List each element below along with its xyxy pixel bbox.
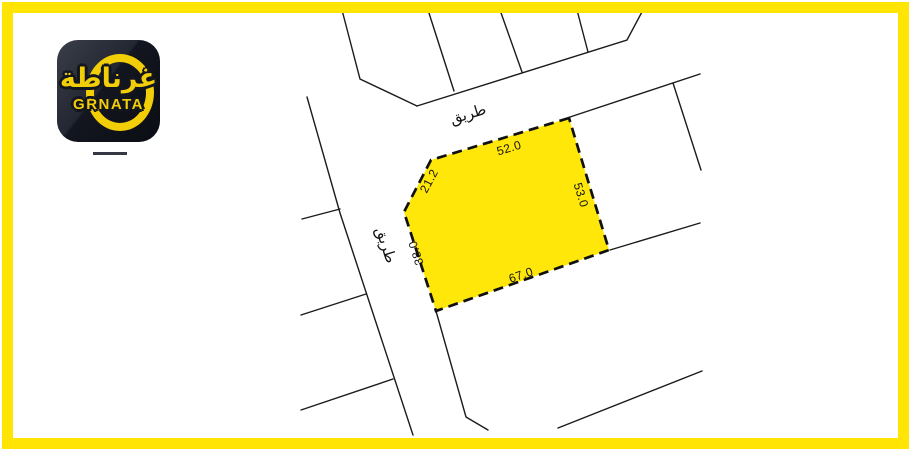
top-block-divider-line-1 <box>428 10 454 91</box>
top-block-west-boundary-line <box>342 10 417 106</box>
top-block-divider-line-3 <box>577 10 588 52</box>
west-block-divider-line-3 <box>301 379 393 410</box>
right-block-divider-line <box>673 83 701 170</box>
left-road-west-edge-line <box>307 97 413 435</box>
southeast-boundary-line <box>558 371 702 428</box>
road-label-top: طريق <box>448 100 489 128</box>
top-road-lower-edge-line <box>570 74 700 117</box>
west-block-divider-line-2 <box>301 294 366 315</box>
logo-underline-rule <box>93 152 127 155</box>
top-road-upper-edge-line <box>417 10 643 106</box>
grnata-logo: غرناطة GRNATA <box>57 40 160 142</box>
west-block-divider-line-1 <box>302 209 340 219</box>
brochure-canvas: 52.0 21.2 38.0 67.0 53.0 طريق طريق غرناط… <box>0 0 911 451</box>
right-block-south-boundary-line <box>610 223 700 250</box>
road-label-left: طريق <box>372 225 401 266</box>
left-road-east-edge-line <box>436 311 488 430</box>
logo-arabic-wordmark: غرناطة <box>57 62 160 96</box>
top-block-divider-line-2 <box>500 10 522 72</box>
logo-latin-wordmark: GRNATA <box>57 96 160 113</box>
